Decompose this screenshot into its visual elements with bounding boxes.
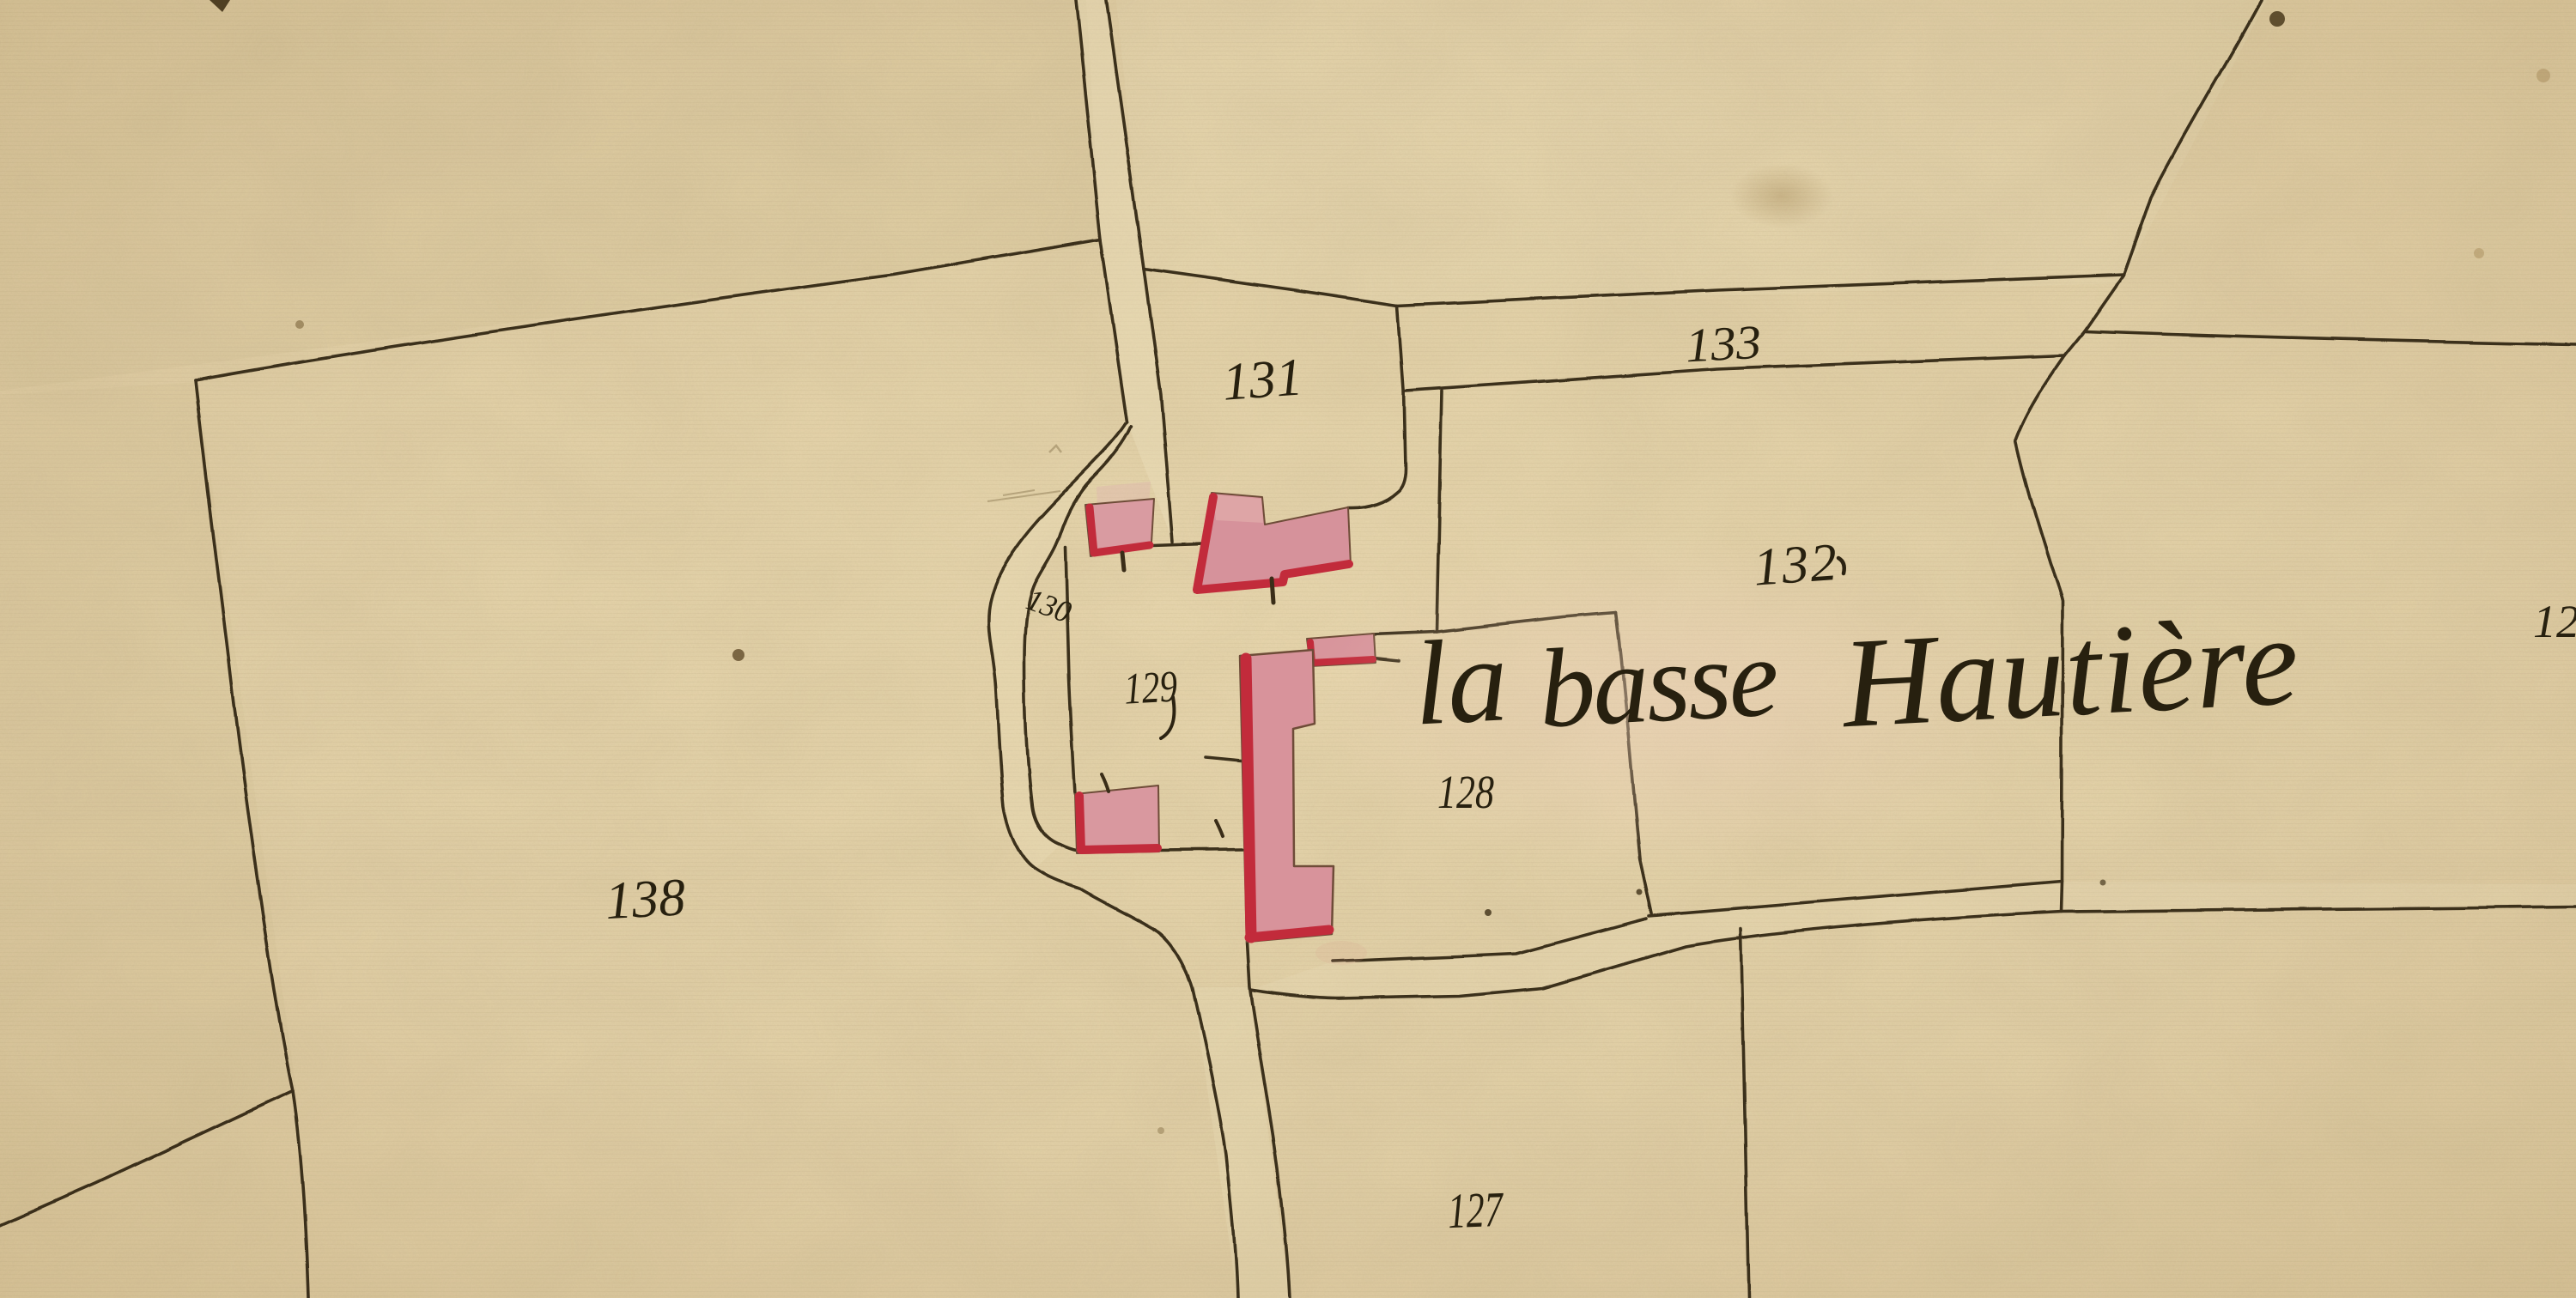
- svg-text:12: 12: [2533, 596, 2576, 647]
- svg-text:138: 138: [604, 868, 686, 931]
- svg-text:129: 129: [1123, 663, 1179, 714]
- svg-text:Hautière: Hautière: [1838, 590, 2303, 755]
- svg-text:132: 132: [1752, 533, 1841, 597]
- svg-text:131: 131: [1221, 348, 1305, 411]
- svg-text:128: 128: [1437, 766, 1494, 818]
- svg-text:la: la: [1411, 613, 1511, 750]
- svg-text:127: 127: [1447, 1181, 1505, 1239]
- svg-text:133: 133: [1684, 316, 1762, 373]
- svg-text:basse: basse: [1536, 615, 1780, 751]
